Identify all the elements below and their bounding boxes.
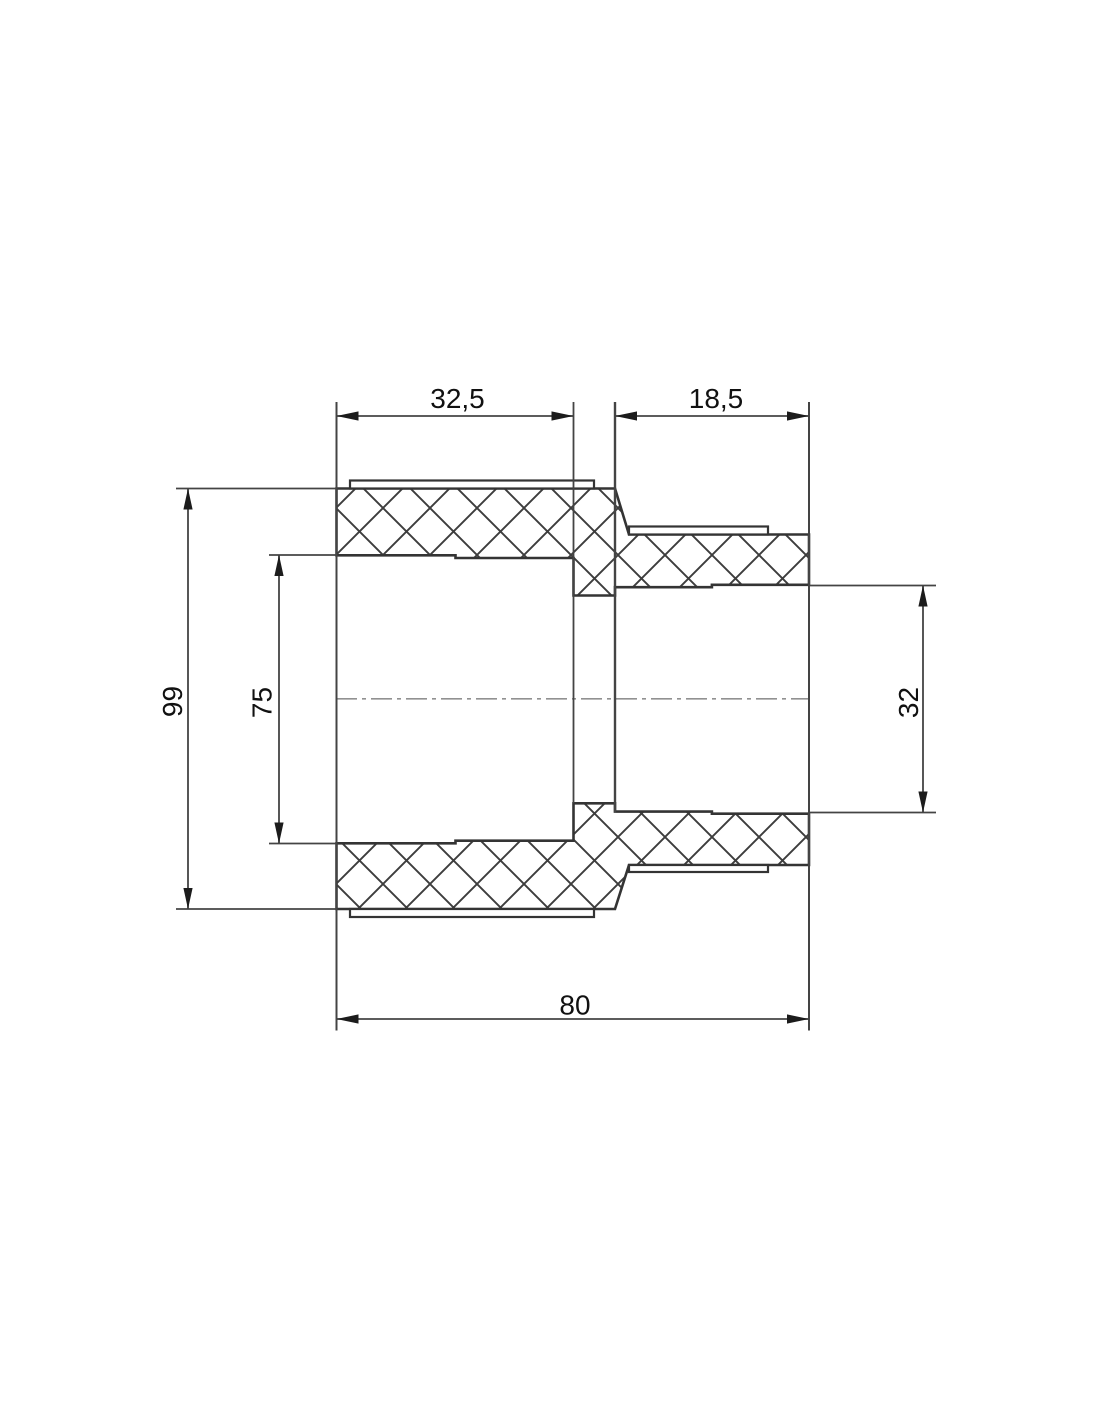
svg-text:32,5: 32,5 (430, 383, 485, 414)
svg-text:75: 75 (247, 687, 278, 718)
svg-text:80: 80 (559, 990, 590, 1021)
svg-text:99: 99 (157, 686, 188, 717)
svg-text:18,5: 18,5 (689, 383, 744, 414)
svg-text:32: 32 (893, 687, 924, 718)
